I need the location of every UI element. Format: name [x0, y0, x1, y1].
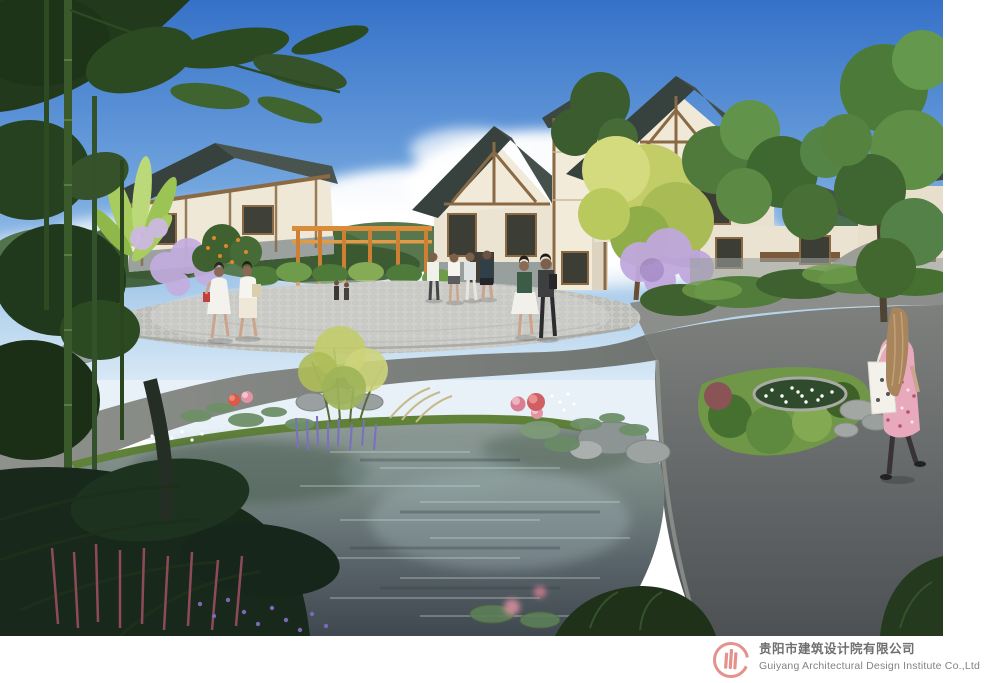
footer: 贵阳市建筑设计院有限公司 Guiyang Architectural Desig…: [710, 639, 980, 681]
company-logo-icon: [710, 639, 752, 681]
architectural-rendering: [0, 0, 943, 636]
company-name-zh: 贵阳市建筑设计院有限公司: [759, 642, 980, 658]
red-lotus-left: [228, 394, 240, 406]
company-name-en: Guiyang Architectural Design Institute C…: [759, 660, 980, 673]
